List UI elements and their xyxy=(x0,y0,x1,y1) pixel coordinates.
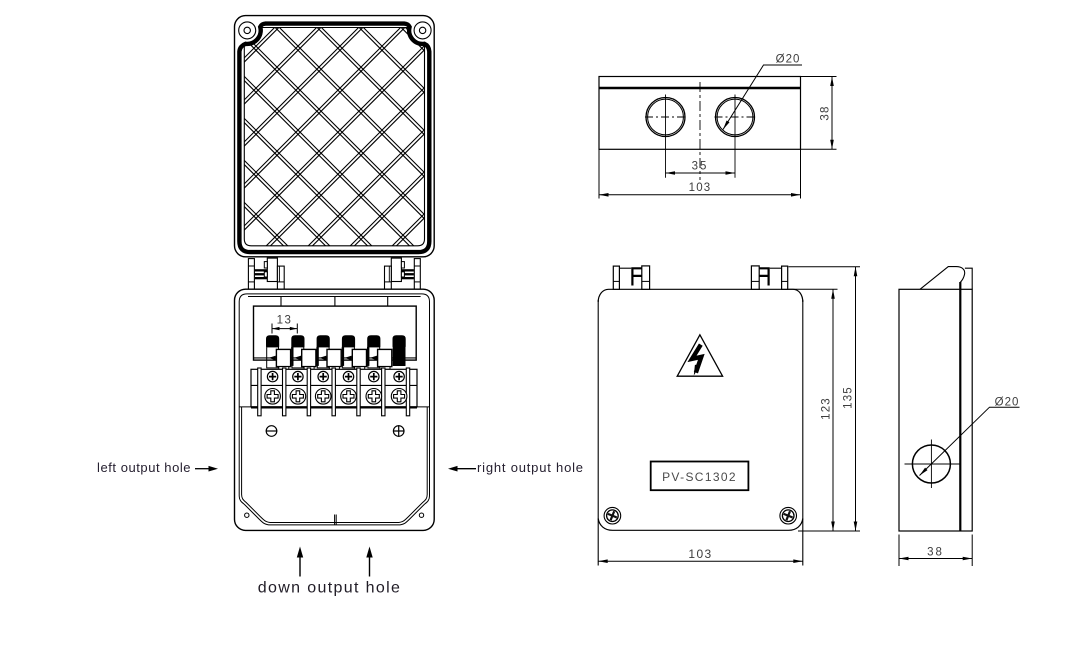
svg-text:135: 135 xyxy=(843,386,855,409)
svg-text:13: 13 xyxy=(277,315,293,327)
svg-text:35: 35 xyxy=(692,161,709,173)
svg-text:right output hole: right output hole xyxy=(477,460,584,475)
svg-text:down output hole: down output hole xyxy=(258,580,401,597)
svg-text:103: 103 xyxy=(688,547,712,561)
svg-text:Ø20: Ø20 xyxy=(995,397,1020,409)
svg-text:38: 38 xyxy=(820,105,832,120)
svg-text:PV-SC1302: PV-SC1302 xyxy=(662,470,737,484)
svg-text:103: 103 xyxy=(689,182,712,194)
svg-text:123: 123 xyxy=(821,397,833,420)
svg-text:left output hole: left output hole xyxy=(97,460,191,475)
svg-text:Ø20: Ø20 xyxy=(776,54,801,66)
svg-text:38: 38 xyxy=(927,547,944,559)
